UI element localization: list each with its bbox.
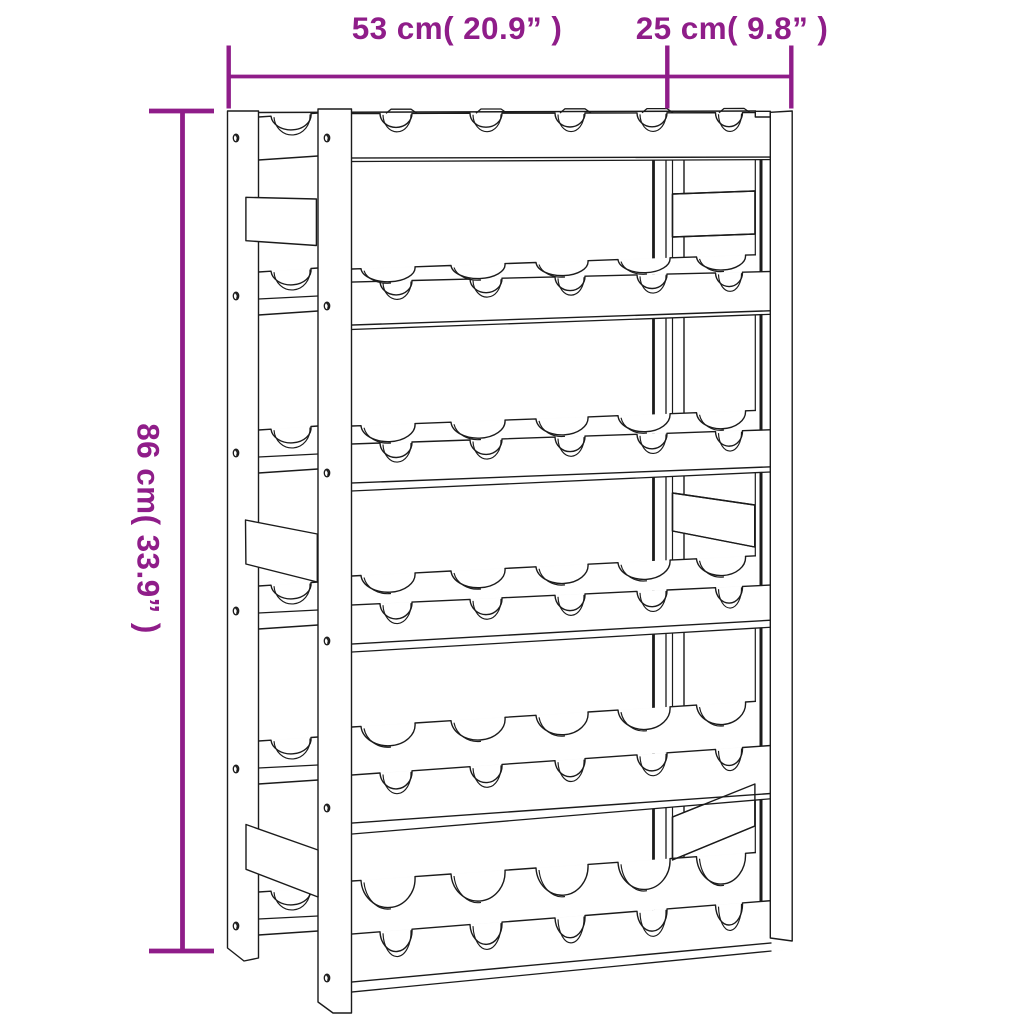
svg-text:25 cm( 9.8” ): 25 cm( 9.8” ) [636,10,829,46]
svg-text:53 cm( 20.9” ): 53 cm( 20.9” ) [352,10,562,46]
svg-text:86 cm( 33.9” ): 86 cm( 33.9” ) [131,423,167,633]
